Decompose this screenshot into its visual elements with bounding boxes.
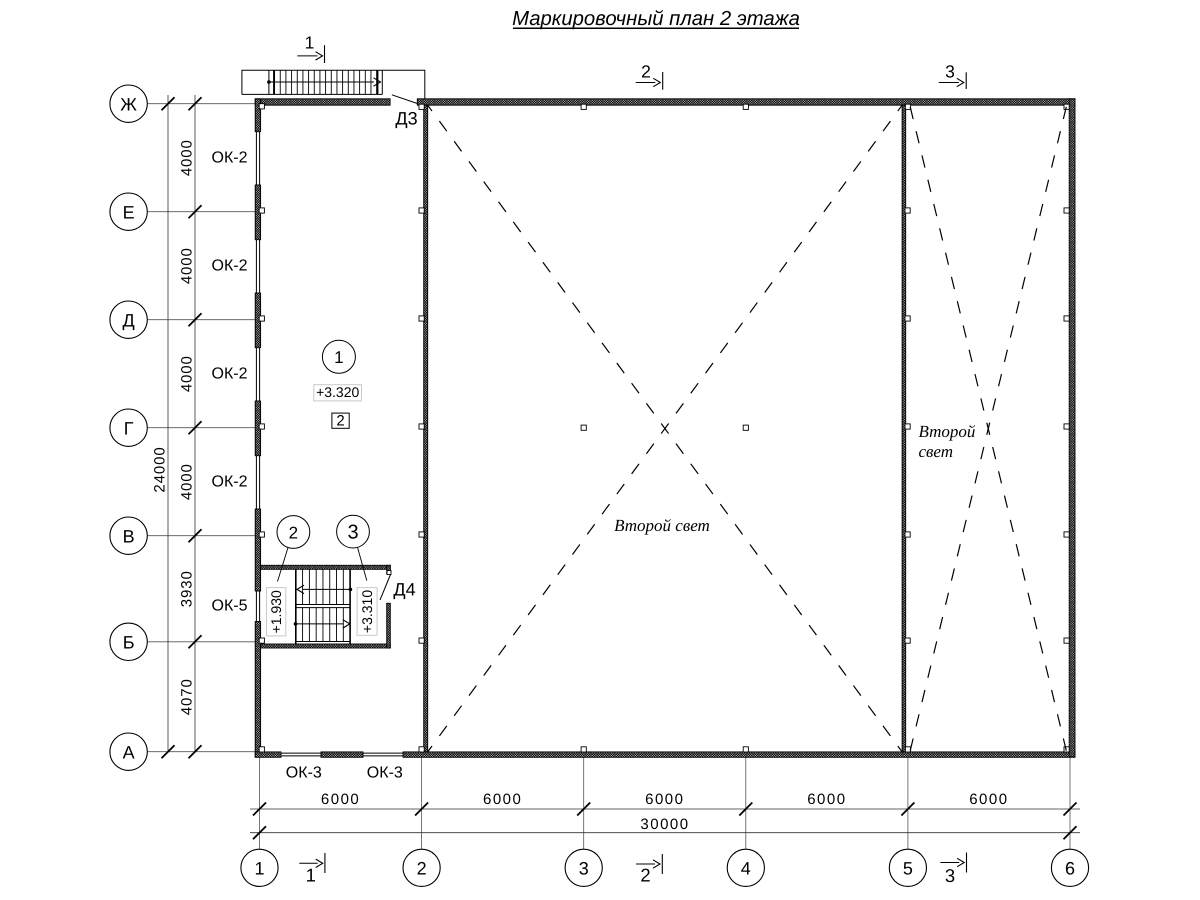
svg-text:Г: Г <box>124 418 134 438</box>
svg-text:4000: 4000 <box>179 139 196 176</box>
svg-text:2: 2 <box>640 864 650 885</box>
svg-text:4000: 4000 <box>179 463 196 500</box>
svg-text:2: 2 <box>641 61 651 81</box>
svg-text:Второй свет: Второй свет <box>614 516 710 535</box>
svg-text:24000: 24000 <box>152 446 169 492</box>
svg-text:1: 1 <box>305 33 315 53</box>
svg-text:ОК-2: ОК-2 <box>212 474 248 491</box>
svg-text:+1.930: +1.930 <box>268 590 284 633</box>
svg-text:В: В <box>123 526 135 546</box>
svg-text:свет: свет <box>919 442 954 461</box>
svg-text:Маркировочный план 2 этажа: Маркировочный план 2 этажа <box>512 8 800 30</box>
svg-text:Д: Д <box>122 310 134 330</box>
svg-text:А: А <box>123 742 135 762</box>
svg-text:6000: 6000 <box>969 791 1008 808</box>
svg-text:Д3: Д3 <box>395 109 417 129</box>
svg-text:3: 3 <box>945 865 955 886</box>
svg-text:ОК-3: ОК-3 <box>286 765 322 782</box>
svg-text:2: 2 <box>417 858 427 878</box>
svg-text:4070: 4070 <box>179 678 196 715</box>
svg-text:30000: 30000 <box>640 816 689 833</box>
svg-text:3: 3 <box>579 858 589 878</box>
svg-text:2: 2 <box>336 413 344 430</box>
svg-text:3930: 3930 <box>179 570 196 607</box>
svg-text:4: 4 <box>741 858 751 878</box>
svg-text:Ж: Ж <box>120 94 137 114</box>
svg-text:3: 3 <box>347 522 358 544</box>
svg-text:ОК-2: ОК-2 <box>212 366 248 383</box>
svg-text:Е: Е <box>123 202 135 222</box>
svg-text:ОК-5: ОК-5 <box>212 598 248 615</box>
svg-text:Д4: Д4 <box>393 580 415 600</box>
svg-text:+3.310: +3.310 <box>359 590 375 633</box>
svg-text:6000: 6000 <box>483 791 522 808</box>
svg-text:Второй: Второй <box>919 422 976 441</box>
svg-text:6000: 6000 <box>645 791 684 808</box>
svg-text:Б: Б <box>123 632 135 652</box>
svg-text:ОК-2: ОК-2 <box>212 258 248 275</box>
svg-text:1: 1 <box>306 864 316 885</box>
svg-text:1: 1 <box>334 348 343 367</box>
svg-text:4000: 4000 <box>179 355 196 392</box>
svg-text:ОК-2: ОК-2 <box>212 150 248 167</box>
svg-text:4000: 4000 <box>179 247 196 284</box>
svg-text:6: 6 <box>1065 858 1075 878</box>
svg-text:ОК-3: ОК-3 <box>367 765 403 782</box>
svg-text:2: 2 <box>289 523 298 542</box>
svg-text:+3.320: +3.320 <box>316 384 359 400</box>
svg-text:6000: 6000 <box>807 791 846 808</box>
svg-text:6000: 6000 <box>321 791 360 808</box>
svg-text:5: 5 <box>903 858 913 878</box>
svg-text:1: 1 <box>254 858 264 878</box>
svg-text:3: 3 <box>945 62 955 82</box>
